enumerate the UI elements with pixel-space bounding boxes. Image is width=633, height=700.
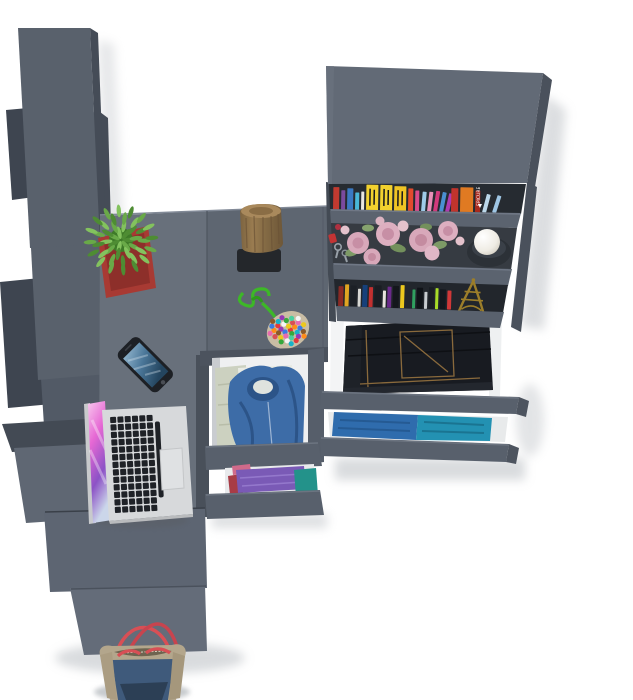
laptop-key — [129, 498, 135, 505]
bead — [284, 318, 289, 323]
book-spine — [355, 192, 359, 210]
book-spine — [338, 286, 344, 306]
laptop-key — [121, 491, 127, 498]
bead — [301, 322, 306, 327]
book-spine — [347, 188, 353, 210]
rose-center — [353, 238, 364, 249]
book-spine — [392, 286, 399, 308]
bead — [272, 334, 277, 339]
book-spine-text — [397, 190, 399, 206]
candle-ball — [474, 229, 500, 255]
laptop-key — [118, 431, 124, 438]
book-spine — [394, 186, 406, 211]
bead — [289, 316, 294, 321]
laptop-key — [140, 430, 146, 437]
orange-book-label: EPICURE — [476, 187, 482, 206]
laptop-key — [135, 475, 141, 482]
book-spine — [451, 188, 458, 212]
laptop-key — [133, 445, 139, 452]
laptop-key — [144, 505, 150, 512]
laptop-key — [127, 468, 133, 475]
laptop-key — [126, 438, 132, 445]
laptop-key — [114, 499, 120, 506]
shelf-top-panel — [326, 66, 543, 184]
book-spine-text — [383, 189, 385, 206]
book-spine — [424, 292, 428, 309]
laptop-key — [142, 468, 148, 475]
book-spine — [374, 285, 382, 307]
laptop-key — [113, 477, 119, 484]
bead — [269, 324, 274, 329]
book-spine — [416, 288, 423, 309]
bead — [296, 316, 301, 321]
book-spine — [405, 288, 411, 308]
bead — [301, 329, 306, 334]
laptop-key — [141, 453, 147, 460]
bookshelf: EPICURE — [326, 66, 552, 332]
bead — [276, 319, 281, 324]
hoodie-drawer — [200, 347, 328, 470]
laptop-key — [136, 498, 142, 505]
laptop-key — [132, 416, 138, 423]
laptop-key — [114, 484, 120, 491]
laptop-key — [134, 453, 140, 460]
laptop-key — [110, 424, 116, 431]
hoodie-lining — [253, 380, 273, 394]
laptop-key — [150, 490, 156, 497]
laptop-key — [140, 423, 146, 430]
laptop-key — [121, 484, 127, 491]
shadow — [516, 384, 544, 456]
bead — [283, 333, 288, 338]
log-stool — [237, 204, 283, 272]
book-spine — [344, 284, 349, 306]
laptop-key — [142, 460, 148, 467]
laptop-key — [136, 490, 142, 497]
log-ring — [249, 207, 273, 215]
rosebud — [376, 217, 385, 226]
laptop-key — [139, 415, 145, 422]
laptop-key — [133, 431, 139, 438]
base-cabinet — [44, 508, 207, 655]
laptop-key — [120, 476, 126, 483]
bag-bottom — [120, 682, 168, 700]
book-spine-text — [401, 191, 403, 205]
folded-jeans — [343, 318, 493, 394]
laptop-key — [143, 483, 149, 490]
book-spine — [387, 287, 392, 308]
laptop-key — [147, 422, 153, 429]
bead — [302, 334, 307, 339]
book-spine — [361, 192, 364, 211]
laptop-key — [128, 476, 134, 483]
bead — [294, 338, 299, 343]
bead — [270, 319, 275, 324]
laptop-key — [112, 462, 118, 469]
laptop-key — [133, 438, 139, 445]
rose — [425, 246, 440, 261]
laptop-key — [119, 454, 125, 461]
laptop-key — [147, 430, 153, 437]
desk-divider-wall — [196, 355, 209, 517]
book-spine — [362, 285, 368, 307]
laptop-key — [148, 452, 154, 459]
laptop-key — [127, 453, 133, 460]
bead — [279, 339, 284, 344]
rose-center — [382, 228, 394, 240]
book-spine-text — [369, 189, 371, 206]
laptop-key — [132, 423, 138, 430]
book-spine — [366, 185, 378, 211]
book-spine — [447, 291, 452, 310]
laptop-key — [134, 460, 140, 467]
teal-shirt — [416, 415, 492, 441]
laptop-key — [114, 492, 120, 499]
laptop-key — [137, 505, 143, 512]
wardrobe-top-slab — [18, 28, 100, 248]
laptop-key — [119, 446, 125, 453]
cabinet-lower — [70, 585, 207, 655]
book-spine — [333, 187, 339, 210]
book-spine — [350, 285, 357, 306]
laptop-key — [149, 460, 155, 467]
laptop-key — [117, 416, 123, 423]
book-spine — [412, 289, 416, 308]
bead — [290, 320, 295, 325]
book-spine-text — [373, 190, 375, 205]
bead — [289, 341, 294, 346]
laptop-key — [141, 445, 147, 452]
book-spine — [408, 188, 413, 211]
jeans-drawer — [320, 313, 529, 417]
rose-center — [368, 253, 376, 261]
laptop-key — [140, 438, 146, 445]
book-spine-text — [387, 190, 389, 205]
bead — [286, 324, 291, 329]
laptop-key — [143, 498, 149, 505]
laptop-key — [122, 506, 128, 513]
laptop-trackpad — [160, 448, 184, 490]
rosebud — [456, 237, 465, 246]
folded-clothes-drawer — [205, 464, 324, 519]
book-spine — [382, 291, 386, 308]
laptop-key — [146, 415, 152, 422]
laptop-key — [112, 454, 118, 461]
red-bud — [335, 224, 341, 230]
book-spine — [341, 190, 345, 210]
denim-shirt — [332, 412, 418, 440]
laptop-key — [110, 417, 116, 424]
laptop-key — [126, 446, 132, 453]
laptop-key — [148, 445, 154, 452]
laptop-key — [135, 468, 141, 475]
book-spine — [368, 287, 373, 307]
laptop-key — [111, 439, 117, 446]
book-spine — [439, 289, 446, 309]
furniture-render: EPICURE — [0, 0, 633, 700]
laptop-key — [129, 506, 135, 513]
jeans-fold — [343, 325, 362, 394]
shirts-drawer — [320, 412, 519, 464]
laptop-key — [149, 467, 155, 474]
laptop-key — [118, 439, 124, 446]
laptop-key — [115, 507, 121, 514]
book-spine — [460, 187, 473, 212]
laptop-key — [125, 431, 131, 438]
scene-svg: EPICURE — [0, 0, 633, 700]
book-spine — [428, 287, 434, 309]
laptop-key — [150, 482, 156, 489]
laptop-key — [111, 432, 117, 439]
laptop-key — [135, 483, 141, 490]
rose-center — [443, 226, 453, 236]
laptop-key — [151, 505, 157, 512]
laptop-key — [143, 490, 149, 497]
rose-center — [415, 234, 427, 246]
laptop-key — [128, 483, 134, 490]
book-spine — [400, 285, 405, 308]
bead — [279, 315, 284, 320]
book-spine — [380, 185, 392, 211]
laptop-key — [148, 437, 154, 444]
laptop-key — [125, 416, 131, 423]
laptop-key — [150, 475, 156, 482]
laptop[interactable] — [84, 401, 193, 528]
bead — [268, 331, 273, 336]
laptop-key — [122, 499, 128, 506]
laptop-key — [112, 447, 118, 454]
laptop-key — [120, 461, 126, 468]
laptop-key — [127, 461, 133, 468]
laptop-key — [129, 491, 135, 498]
rosebud — [398, 221, 409, 232]
laptop-key — [118, 424, 124, 431]
laptop-key — [142, 475, 148, 482]
drawer-rail — [330, 313, 344, 399]
leaf — [362, 225, 374, 232]
laptop-key — [113, 469, 119, 476]
laptop-key — [151, 497, 157, 504]
book-spine — [357, 289, 361, 307]
laptop-key — [125, 423, 131, 430]
book-spine — [415, 190, 419, 211]
laptop-key — [120, 469, 126, 476]
rosebud — [341, 226, 350, 235]
